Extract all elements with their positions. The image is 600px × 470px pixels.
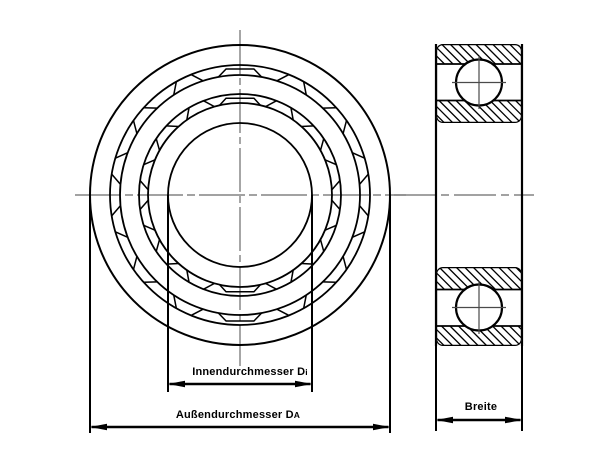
inner-diameter-label-text: Innendurchmesser D (192, 366, 305, 378)
width-label: Breite (465, 401, 497, 413)
outer-diameter-subscript: A (294, 410, 300, 420)
width-label-text: Breite (465, 401, 497, 413)
cross-section-view (394, 44, 538, 346)
inner-diameter-label: Innendurchmesser Di (192, 366, 308, 378)
bearing-technical-drawing (0, 0, 600, 470)
front-view-bearing (75, 30, 406, 366)
inner-diameter-subscript: i (305, 367, 308, 377)
drawing-canvas: Innendurchmesser Di Außendurchmesser DA … (0, 0, 600, 470)
outer-diameter-label: Außendurchmesser DA (176, 409, 300, 421)
outer-diameter-label-text: Außendurchmesser D (176, 409, 294, 421)
